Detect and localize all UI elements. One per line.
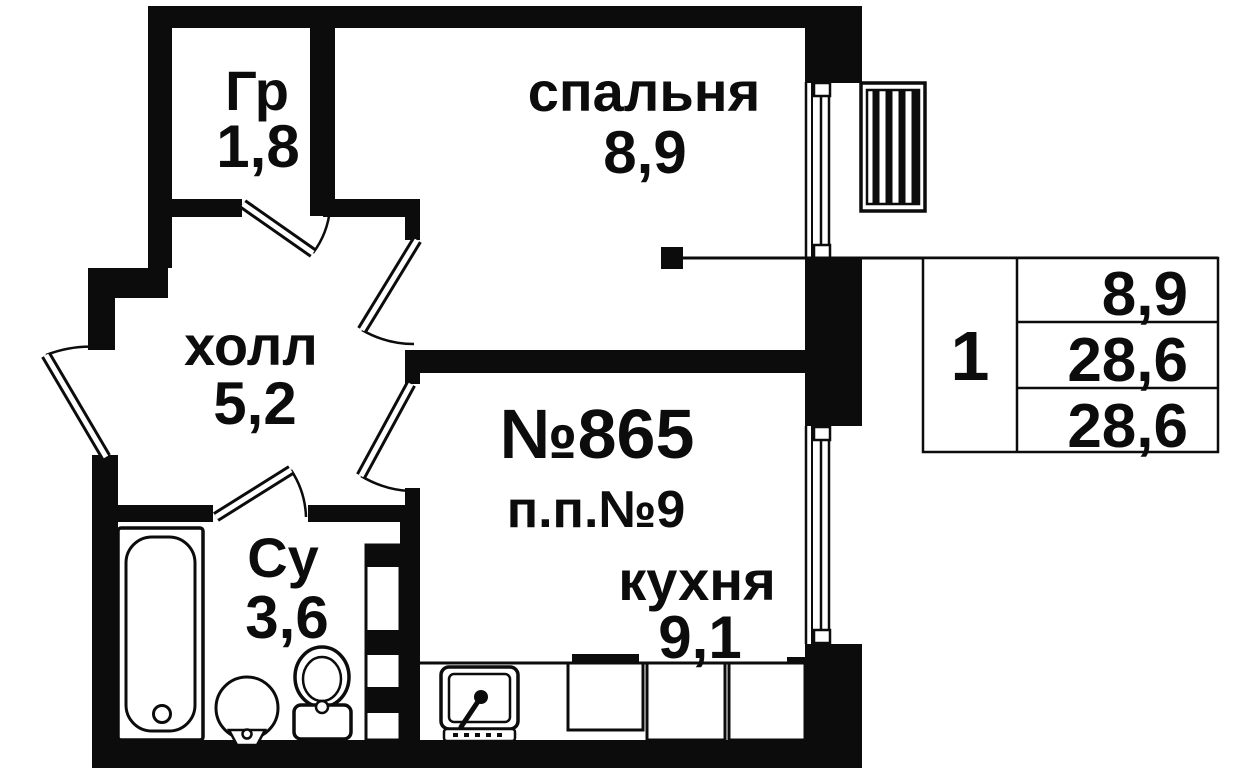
shaft-band-middle xyxy=(366,630,400,655)
stove-panel xyxy=(572,654,639,663)
bedroom-area: 8,9 xyxy=(603,119,686,186)
wall-closet-right xyxy=(310,6,335,216)
kitchen-sink xyxy=(441,667,518,741)
bedroom-door-leaf-core xyxy=(362,240,417,330)
kitchen-label: кухня xyxy=(618,549,776,612)
washbasin xyxy=(216,677,278,745)
shaft-band-bottom xyxy=(366,687,400,713)
kitchen-counter xyxy=(420,654,805,741)
closet-door-leaf-core xyxy=(243,204,313,253)
apartment-number: №865 xyxy=(500,395,695,473)
shaft-band-top xyxy=(366,545,400,567)
wall-closet-left xyxy=(148,6,172,268)
wall-kitchen-door-post-top xyxy=(405,350,420,384)
hall-label: холл xyxy=(184,314,318,377)
window-cap-bottom xyxy=(814,245,830,258)
hall-area: 5,2 xyxy=(213,370,296,437)
closet-area: 1,8 xyxy=(216,113,299,180)
counter-unit-1 xyxy=(647,663,725,740)
window-cap-top xyxy=(814,427,830,440)
table-living-area: 8,9 xyxy=(1102,260,1188,329)
kitchen-door-arc xyxy=(361,476,409,491)
bathtub xyxy=(118,528,203,740)
table-rooms-count: 1 xyxy=(951,317,990,395)
wall-top xyxy=(148,6,862,28)
kitchen-door-leaf-core xyxy=(361,384,411,476)
table-full-area: 28,6 xyxy=(1067,392,1188,461)
wall-bath-top-left xyxy=(118,505,213,522)
vent-shaft xyxy=(366,545,400,740)
window-cap-bottom xyxy=(814,630,830,643)
bathtub-drain xyxy=(154,706,171,723)
stove-body xyxy=(568,663,643,730)
stove xyxy=(568,654,643,730)
wall-bedroom-kitchen-divider xyxy=(405,350,805,373)
bedroom-window xyxy=(806,82,830,258)
wall-left-step xyxy=(88,268,168,298)
wall-right-top xyxy=(805,6,862,83)
floor-plan: 1 8,9 28,6 28,6 Гр 1,8 спальня 8,9 холл … xyxy=(0,0,1237,768)
bedroom-leader-marker xyxy=(661,247,683,269)
window-glazing xyxy=(821,95,829,246)
kitchen-window xyxy=(806,426,830,644)
bathroom-door-leaf-core xyxy=(216,470,291,517)
window-cap-top xyxy=(814,83,830,96)
kitchen-area: 9,1 xyxy=(658,604,741,671)
counter-unit-2 xyxy=(729,663,805,740)
wall-right-middle xyxy=(805,258,862,426)
wall-bedroom-door-post xyxy=(405,210,420,240)
bathroom-label: Су xyxy=(247,526,319,589)
apartment-plan-note: п.п.№9 xyxy=(507,481,686,539)
balcony-basket xyxy=(861,83,925,211)
wall-left-lower xyxy=(92,455,118,740)
floor-plan-page: 1 8,9 28,6 28,6 Гр 1,8 спальня 8,9 холл … xyxy=(0,0,1237,768)
window-glazing xyxy=(821,439,829,631)
bedroom-label: спальня xyxy=(528,60,761,123)
bathroom-area: 3,6 xyxy=(245,584,328,651)
toilet xyxy=(294,647,351,739)
table-total-area: 28,6 xyxy=(1067,326,1188,395)
entrance-door-leaf-core xyxy=(46,355,106,457)
wall-bath-top-right xyxy=(308,505,420,522)
wall-closet-bottom xyxy=(158,199,242,217)
bedroom-door-arc xyxy=(362,330,414,344)
wall-bottom xyxy=(92,740,862,768)
toilet-flush-knob xyxy=(316,701,328,713)
bathroom-door-arc xyxy=(291,470,306,517)
washbasin-tap xyxy=(243,730,252,739)
wall-bath-kitchen xyxy=(400,505,420,740)
